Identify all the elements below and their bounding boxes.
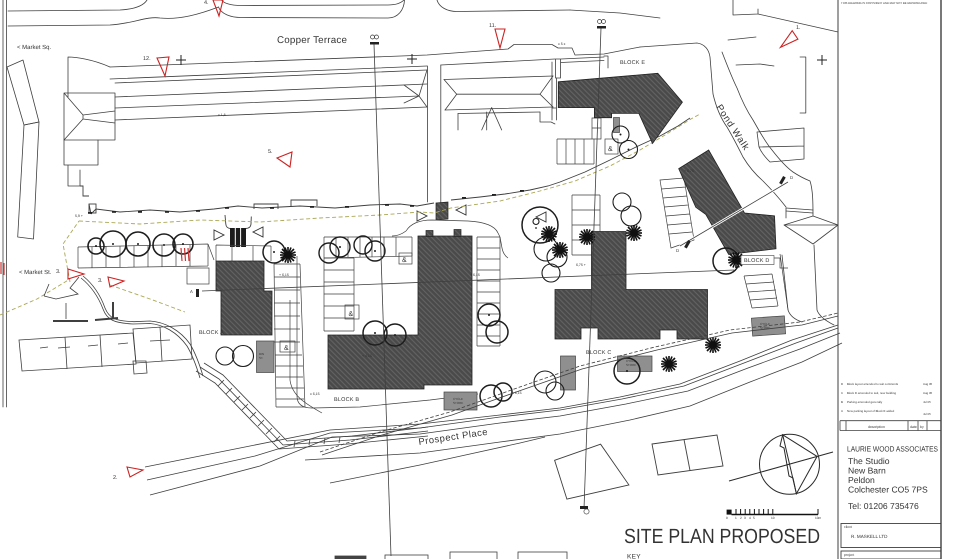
svg-text:Aug 05: Aug 05 bbox=[923, 391, 933, 395]
svg-text:Block D amended to suit, new b: Block D amended to suit, new building bbox=[847, 391, 896, 395]
svg-text:BLOCK B: BLOCK B bbox=[334, 397, 359, 403]
svg-text:New Barn: New Barn bbox=[848, 466, 886, 476]
svg-text:4: 4 bbox=[749, 516, 751, 520]
svg-text:x 5 x: x 5 x bbox=[558, 42, 566, 46]
svg-text:3: 3 bbox=[744, 516, 746, 520]
svg-text:STORE: STORE bbox=[626, 363, 636, 367]
svg-text:+ 6,15: + 6,15 bbox=[470, 273, 480, 277]
svg-text:A: A bbox=[737, 263, 740, 268]
svg-text:2.: 2. bbox=[113, 475, 118, 481]
svg-text:KEY: KEY bbox=[627, 554, 641, 559]
svg-text:< Market Sq.: < Market Sq. bbox=[17, 44, 52, 51]
svg-text:New parking layout of Block E: New parking layout of Block E added bbox=[847, 409, 895, 413]
svg-text:+ 6,75: + 6,75 bbox=[684, 169, 694, 173]
svg-text:by: by bbox=[920, 425, 924, 429]
svg-text:12.: 12. bbox=[143, 56, 151, 62]
svg-text:< Market St.: < Market St. bbox=[19, 269, 52, 276]
svg-text:&: & bbox=[402, 257, 407, 264]
svg-text:D: D bbox=[676, 248, 679, 253]
svg-text:Tel: 01206 735476: Tel: 01206 735476 bbox=[848, 501, 919, 511]
svg-text:x 6,15: x 6,15 bbox=[310, 392, 320, 396]
svg-text:&: & bbox=[284, 345, 289, 352]
svg-text:D: D bbox=[841, 382, 843, 386]
svg-text:11.: 11. bbox=[489, 23, 497, 29]
svg-text:Aug 05: Aug 05 bbox=[923, 382, 933, 386]
svg-text:&: & bbox=[608, 146, 613, 153]
svg-text:description: description bbox=[868, 425, 885, 429]
svg-text:BLOCK A: BLOCK A bbox=[199, 330, 224, 336]
svg-text:4.: 4. bbox=[204, 0, 209, 6]
svg-text:Jul 05: Jul 05 bbox=[923, 400, 931, 404]
svg-text:Colchester CO5 7PS: Colchester CO5 7PS bbox=[848, 485, 928, 495]
svg-text:10m: 10m bbox=[815, 516, 822, 520]
svg-text:Parking amended generally: Parking amended generally bbox=[847, 400, 883, 404]
svg-text:THIS DRAWING IS COPYRIGHT AND: THIS DRAWING IS COPYRIGHT AND MAY NOT BE… bbox=[841, 1, 927, 5]
svg-text:A: A bbox=[841, 409, 843, 413]
svg-text:Block layout amended to suit c: Block layout amended to suit comments bbox=[847, 382, 899, 386]
svg-text:3.: 3. bbox=[56, 269, 61, 275]
svg-text:5: 5 bbox=[753, 516, 755, 520]
svg-text:+ 6,15: + 6,15 bbox=[279, 273, 289, 277]
svg-text:STORE: STORE bbox=[453, 401, 463, 405]
svg-text:BLOCK D: BLOCK D bbox=[744, 258, 770, 264]
svg-text:BLOCK E: BLOCK E bbox=[620, 60, 645, 66]
svg-text:date: date bbox=[910, 425, 917, 429]
svg-text:2: 2 bbox=[740, 516, 742, 520]
svg-text:Copper Terrace: Copper Terrace bbox=[277, 35, 347, 46]
svg-text:0: 0 bbox=[726, 516, 728, 520]
svg-text:client: client bbox=[844, 525, 852, 529]
svg-text:ST.: ST. bbox=[259, 356, 264, 360]
svg-text:R. MASKELL LTD: R. MASKELL LTD bbox=[851, 534, 888, 539]
svg-text:+ 4,15: + 4,15 bbox=[362, 354, 372, 358]
svg-text:1.: 1. bbox=[796, 25, 801, 31]
svg-text:1: 1 bbox=[735, 516, 737, 520]
svg-text:A: A bbox=[190, 289, 193, 294]
svg-text:SITE PLAN PROPOSED: SITE PLAN PROPOSED bbox=[624, 525, 820, 548]
svg-text:x 1,8: x 1,8 bbox=[218, 113, 226, 117]
svg-text:B: B bbox=[841, 400, 843, 404]
svg-text:C: C bbox=[841, 391, 843, 395]
svg-text:x 6,15: x 6,15 bbox=[512, 391, 522, 395]
svg-text:&: & bbox=[349, 311, 354, 318]
svg-text:D: D bbox=[790, 175, 793, 180]
svg-text:5.: 5. bbox=[268, 149, 273, 155]
svg-text:The Studio: The Studio bbox=[848, 456, 890, 466]
svg-text:BLOCK C: BLOCK C bbox=[586, 350, 612, 356]
svg-text:10: 10 bbox=[771, 516, 775, 520]
svg-text:Peldon: Peldon bbox=[848, 475, 875, 485]
svg-text:3.: 3. bbox=[98, 278, 103, 284]
svg-text:6,75 +: 6,75 + bbox=[576, 263, 586, 267]
svg-text:5,9 +: 5,9 + bbox=[75, 214, 83, 218]
svg-text:Jul 05: Jul 05 bbox=[923, 412, 931, 416]
svg-text:project: project bbox=[844, 553, 854, 557]
svg-text:LAURIE WOOD ASSOCIATES: LAURIE WOOD ASSOCIATES bbox=[847, 445, 938, 454]
